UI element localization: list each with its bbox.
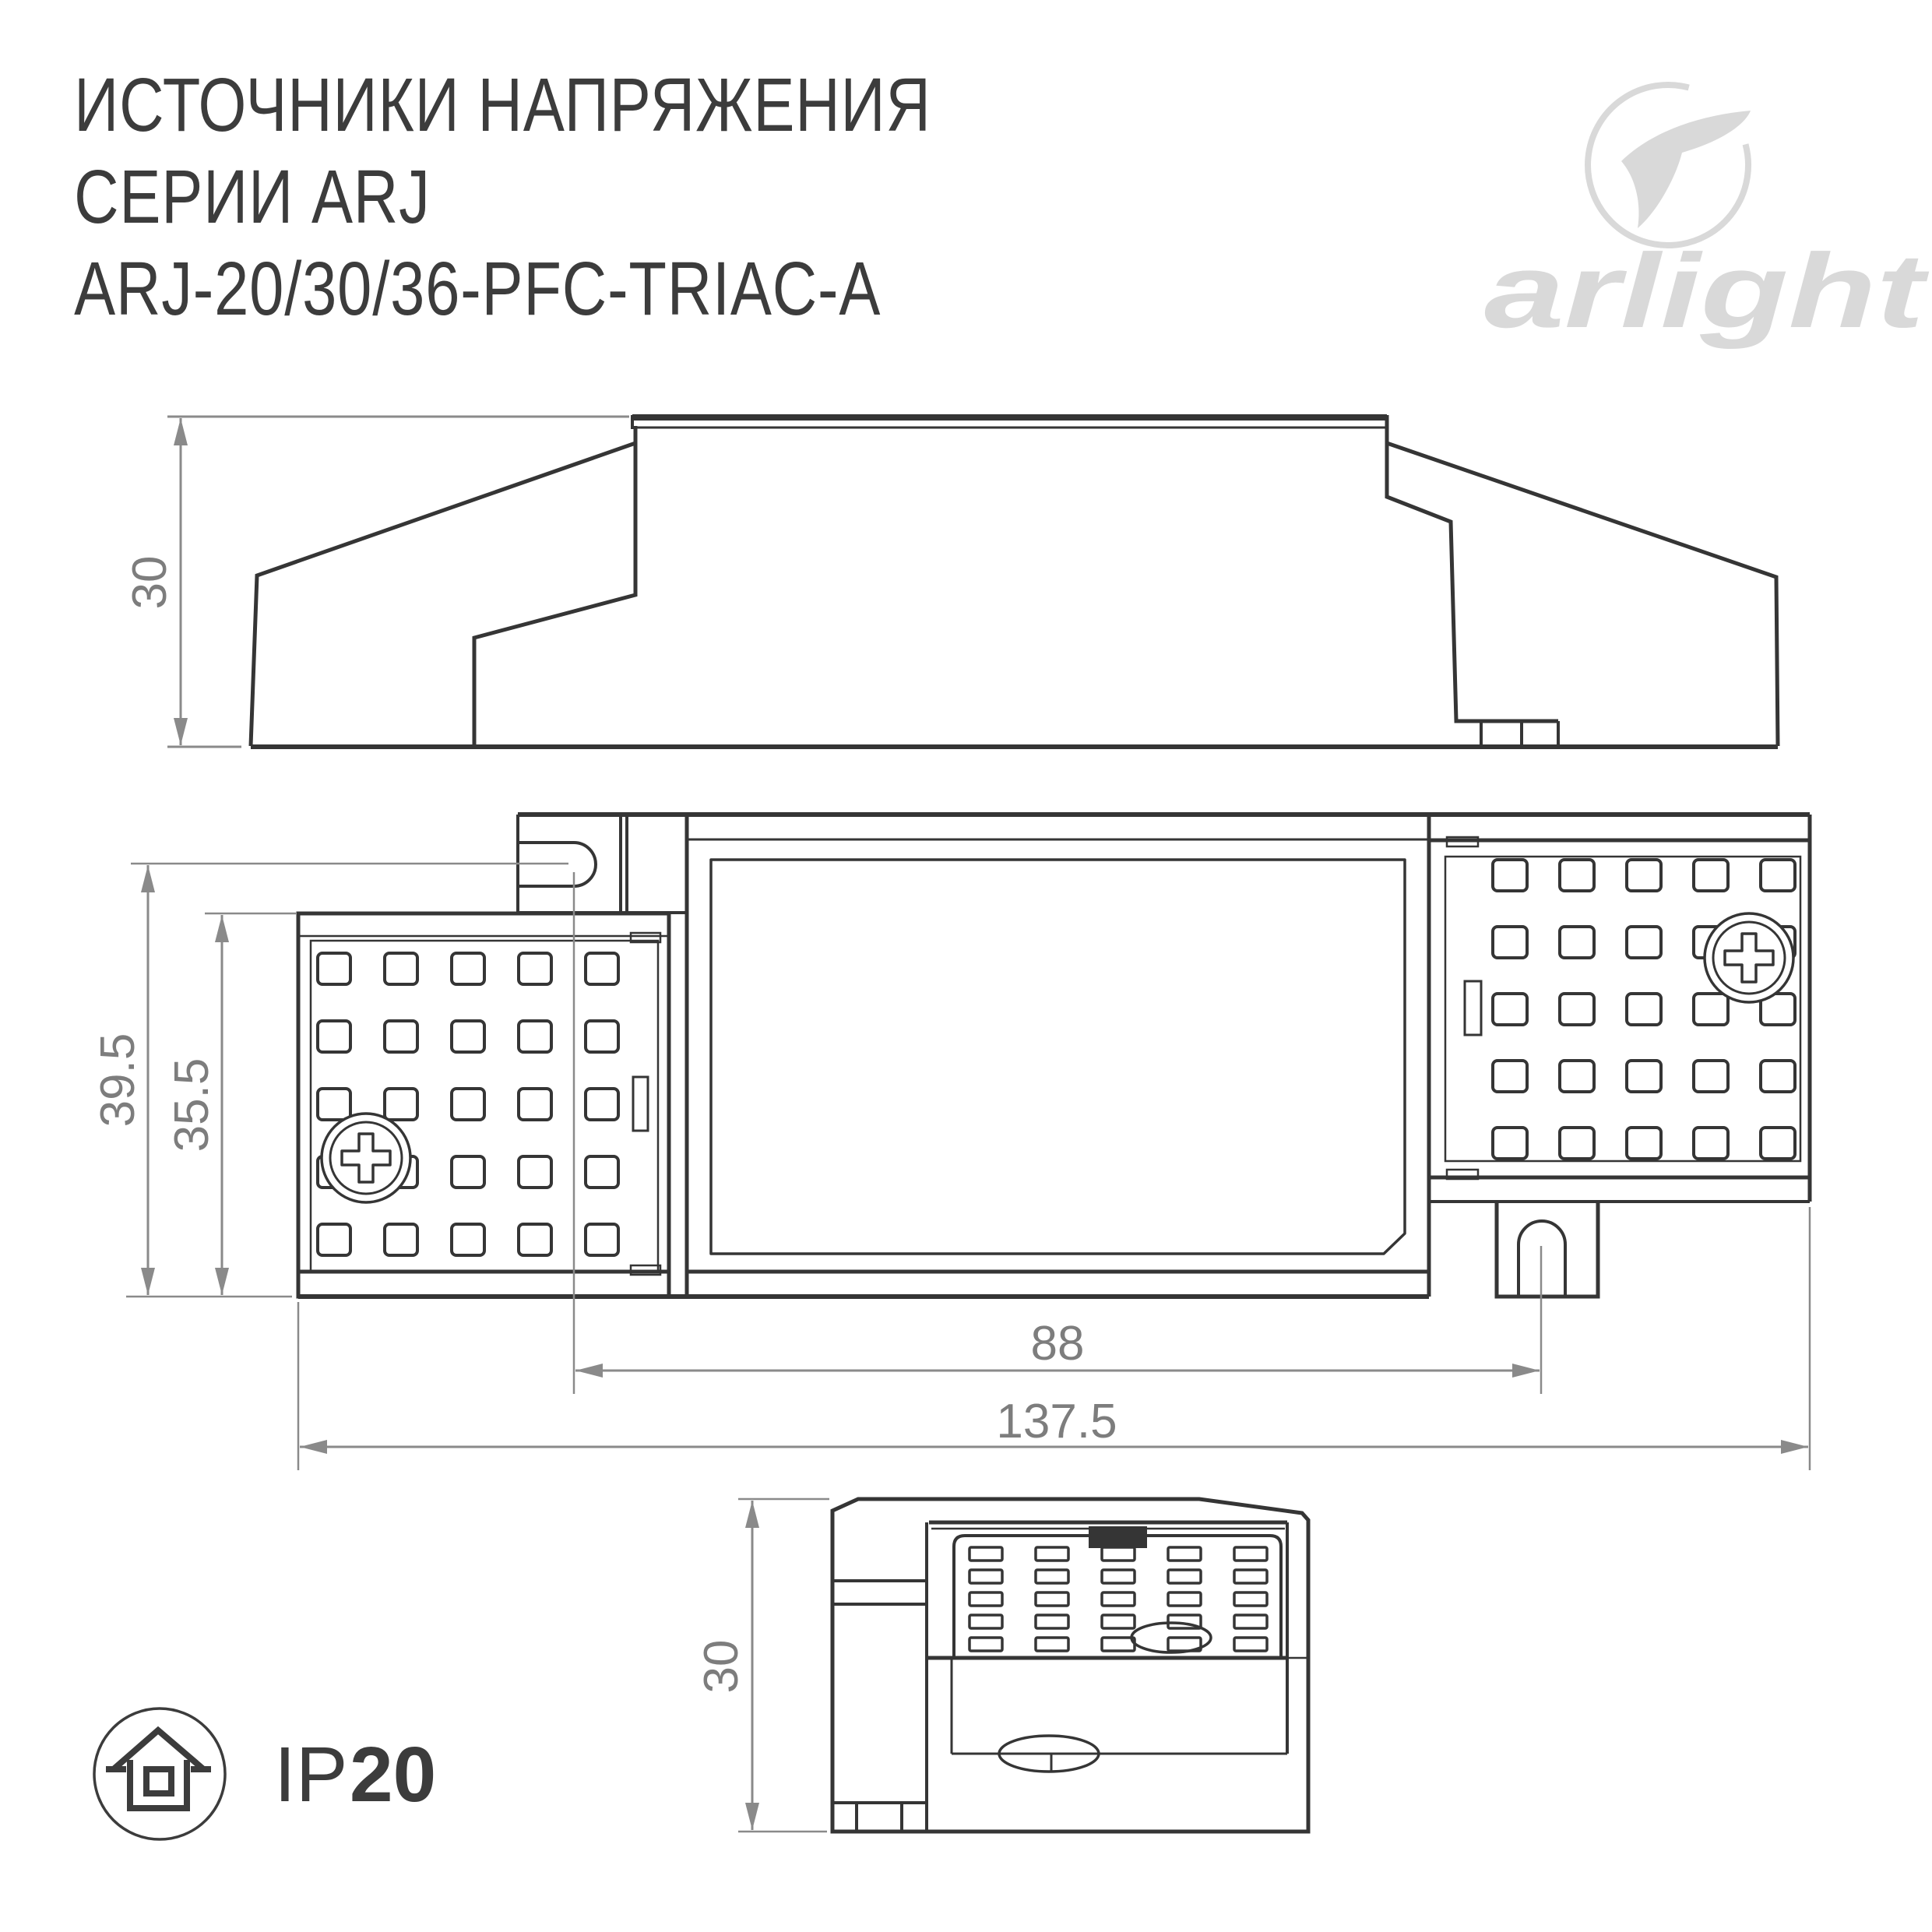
ip-rating-prefix: IP — [274, 1731, 347, 1818]
arrow-down-icon — [745, 1803, 759, 1830]
arrow-left-icon — [300, 1440, 327, 1454]
side-left-step — [474, 426, 635, 746]
vent-hole — [1168, 1570, 1201, 1583]
vent-hole — [1761, 1128, 1795, 1159]
dim-label-side-height: 30 — [123, 556, 177, 610]
vent-hole — [1560, 860, 1594, 891]
vent-hole — [586, 1156, 618, 1188]
arrow-down-icon — [215, 1268, 229, 1295]
vent-hole — [1627, 860, 1661, 891]
dim-extension-lines — [167, 417, 629, 747]
end-view: 30 — [695, 1499, 1308, 1832]
vent-hole — [318, 1021, 350, 1052]
vent-hole — [1234, 1570, 1267, 1583]
dim-label-body-height: 35.5 — [165, 1058, 219, 1153]
dim-end-height: 30 — [695, 1499, 829, 1832]
vent-hole — [1102, 1638, 1135, 1651]
vent-hole — [1102, 1615, 1135, 1628]
vent-hole — [1234, 1615, 1267, 1628]
dim-hole-spacing: 88 — [574, 872, 1541, 1394]
house-window-icon — [146, 1769, 171, 1793]
dim-side-height: 30 — [123, 417, 629, 747]
arrow-up-icon — [745, 1501, 759, 1528]
central-cover-plate — [711, 860, 1405, 1254]
right-vent-block — [1429, 815, 1810, 1202]
house-icon — [109, 1730, 208, 1808]
vent-hole — [1036, 1592, 1068, 1606]
technical-drawing: ИСТОЧНИКИ НАПРЯЖЕНИЯ СЕРИИ ARJ ARJ-20/30… — [0, 0, 1932, 1932]
vent-hole — [1493, 927, 1527, 958]
vent-hole — [519, 953, 551, 984]
datasheet-page: ИСТОЧНИКИ НАПРЯЖЕНИЯ СЕРИИ ARJ ARJ-20/30… — [0, 0, 1932, 1932]
vent-hole — [385, 1089, 417, 1120]
vent-hole — [1234, 1638, 1267, 1651]
ip-rating-value: 20 — [350, 1731, 436, 1818]
mount-tab-bottom-outline — [1497, 1202, 1598, 1297]
vent-hole — [1036, 1547, 1068, 1561]
phillips-screw-icon — [1705, 913, 1793, 1002]
vent-hole — [519, 1021, 551, 1052]
vent-hole — [1234, 1547, 1267, 1561]
dim-label-hole-spacing: 88 — [1031, 1317, 1085, 1371]
end-left-column — [832, 1522, 927, 1832]
arrow-down-icon — [141, 1268, 155, 1295]
vent-hole — [1234, 1592, 1267, 1606]
vent-hole — [970, 1547, 1002, 1561]
side-view: 30 — [123, 415, 1778, 747]
ip-badge: IP 20 — [94, 1709, 436, 1839]
vent-hole — [1102, 1592, 1135, 1606]
dim-label-overall-length: 137.5 — [996, 1395, 1117, 1448]
end-key-marker — [1089, 1526, 1147, 1548]
vent-hole — [970, 1570, 1002, 1583]
arrow-left-icon — [575, 1364, 603, 1378]
side-right-step — [1387, 415, 1558, 721]
right-block-latch — [1465, 981, 1481, 1035]
side-left-profile — [251, 443, 635, 746]
vent-hole — [1036, 1570, 1068, 1583]
vent-hole — [1102, 1570, 1135, 1583]
vent-hole — [452, 1021, 484, 1052]
vent-hole — [1627, 994, 1661, 1025]
vent-hole — [1627, 1128, 1661, 1159]
dim-extension-lines — [574, 872, 1541, 1394]
arrow-right-icon — [1781, 1440, 1808, 1454]
vent-hole — [1694, 1061, 1728, 1092]
vent-hole — [1560, 927, 1594, 958]
vent-hole — [1493, 1128, 1527, 1159]
plan-view: 39.5 35.5 88 137.5 — [91, 815, 1810, 1470]
arlight-logo: arlight — [1484, 85, 1930, 350]
vent-hole — [1168, 1547, 1201, 1561]
vent-hole — [1036, 1615, 1068, 1628]
page-title-line3: ARJ-20/30/36-PFC-TRIAC-A — [74, 247, 881, 331]
mount-tab-bottom — [1497, 1202, 1598, 1297]
vent-hole — [586, 1021, 618, 1052]
side-feet — [1481, 721, 1558, 745]
vent-hole — [1493, 994, 1527, 1025]
vent-hole — [586, 1224, 618, 1255]
vent-hole — [1627, 1061, 1661, 1092]
end-lower-panel — [952, 1658, 1287, 1754]
vent-hole — [1627, 927, 1661, 958]
page-title-line1: ИСТОЧНИКИ НАПРЯЖЕНИЯ — [74, 63, 931, 147]
vent-hole — [452, 1224, 484, 1255]
vent-hole — [1560, 1061, 1594, 1092]
phillips-screw-icon — [322, 1114, 410, 1202]
vent-hole — [519, 1224, 551, 1255]
central-body-sides — [687, 815, 1429, 1297]
vent-hole — [318, 953, 350, 984]
vent-hole — [1493, 860, 1527, 891]
vent-hole — [970, 1638, 1002, 1651]
vent-hole — [519, 1156, 551, 1188]
end-vent-grid — [970, 1547, 1267, 1651]
arrow-right-icon — [1512, 1364, 1540, 1378]
logo-wordmark: arlight — [1484, 232, 1930, 350]
dim-label-overall-height: 39.5 — [91, 1033, 145, 1128]
right-block-outline — [1429, 840, 1810, 1177]
vent-hole — [1102, 1547, 1135, 1561]
arrow-up-icon — [141, 865, 155, 892]
vent-hole — [318, 1089, 350, 1120]
vent-hole — [1560, 994, 1594, 1025]
vent-hole — [385, 1021, 417, 1052]
vent-hole — [970, 1592, 1002, 1606]
right-vent-grid — [1493, 860, 1795, 1159]
left-block-latch — [633, 1077, 648, 1131]
arrow-up-icon — [174, 418, 188, 445]
vent-hole — [385, 953, 417, 984]
vent-hole — [586, 1089, 618, 1120]
vent-hole — [452, 953, 484, 984]
arrow-down-icon — [174, 718, 188, 745]
vent-hole — [1168, 1592, 1201, 1606]
page-title-line2: СЕРИИ ARJ — [74, 155, 431, 239]
vent-hole — [1493, 1061, 1527, 1092]
vent-hole — [1761, 860, 1795, 891]
vent-hole — [1694, 860, 1728, 891]
vent-hole — [385, 1224, 417, 1255]
arrow-up-icon — [215, 915, 229, 942]
vent-hole — [1560, 1128, 1594, 1159]
left-vent-block — [298, 913, 669, 1297]
vent-hole — [1036, 1638, 1068, 1651]
vent-hole — [1761, 1061, 1795, 1092]
vent-hole — [452, 1156, 484, 1188]
vent-hole — [519, 1089, 551, 1120]
vent-hole — [1694, 1128, 1728, 1159]
vent-hole — [586, 953, 618, 984]
vent-hole — [1694, 994, 1728, 1025]
vent-hole — [318, 1224, 350, 1255]
vent-hole — [970, 1615, 1002, 1628]
side-right-profile — [1387, 443, 1778, 746]
title-block: ИСТОЧНИКИ НАПРЯЖЕНИЯ СЕРИИ ARJ ARJ-20/30… — [74, 63, 931, 331]
vent-hole — [452, 1089, 484, 1120]
dim-label-end-height: 30 — [695, 1640, 748, 1694]
